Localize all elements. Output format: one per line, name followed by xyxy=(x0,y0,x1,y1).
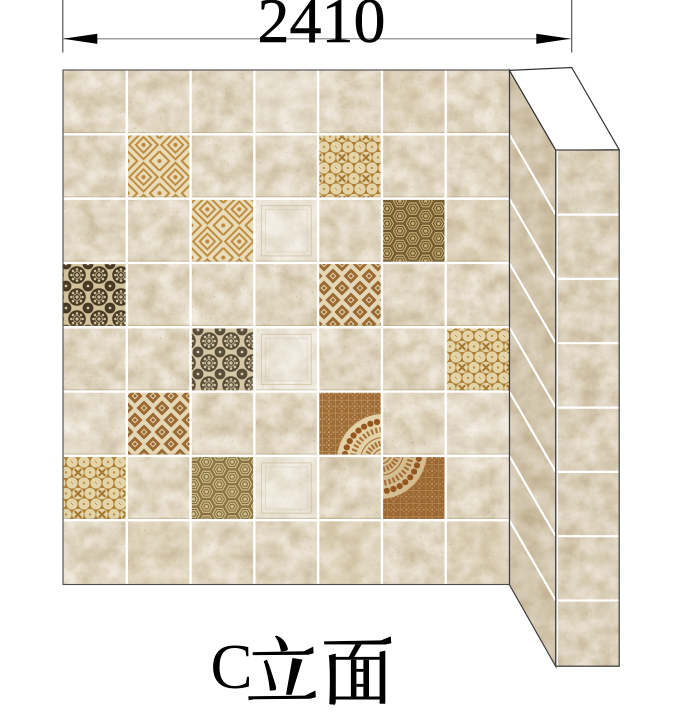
svg-text:2410: 2410 xyxy=(258,0,386,56)
svg-text:C: C xyxy=(211,632,253,702)
